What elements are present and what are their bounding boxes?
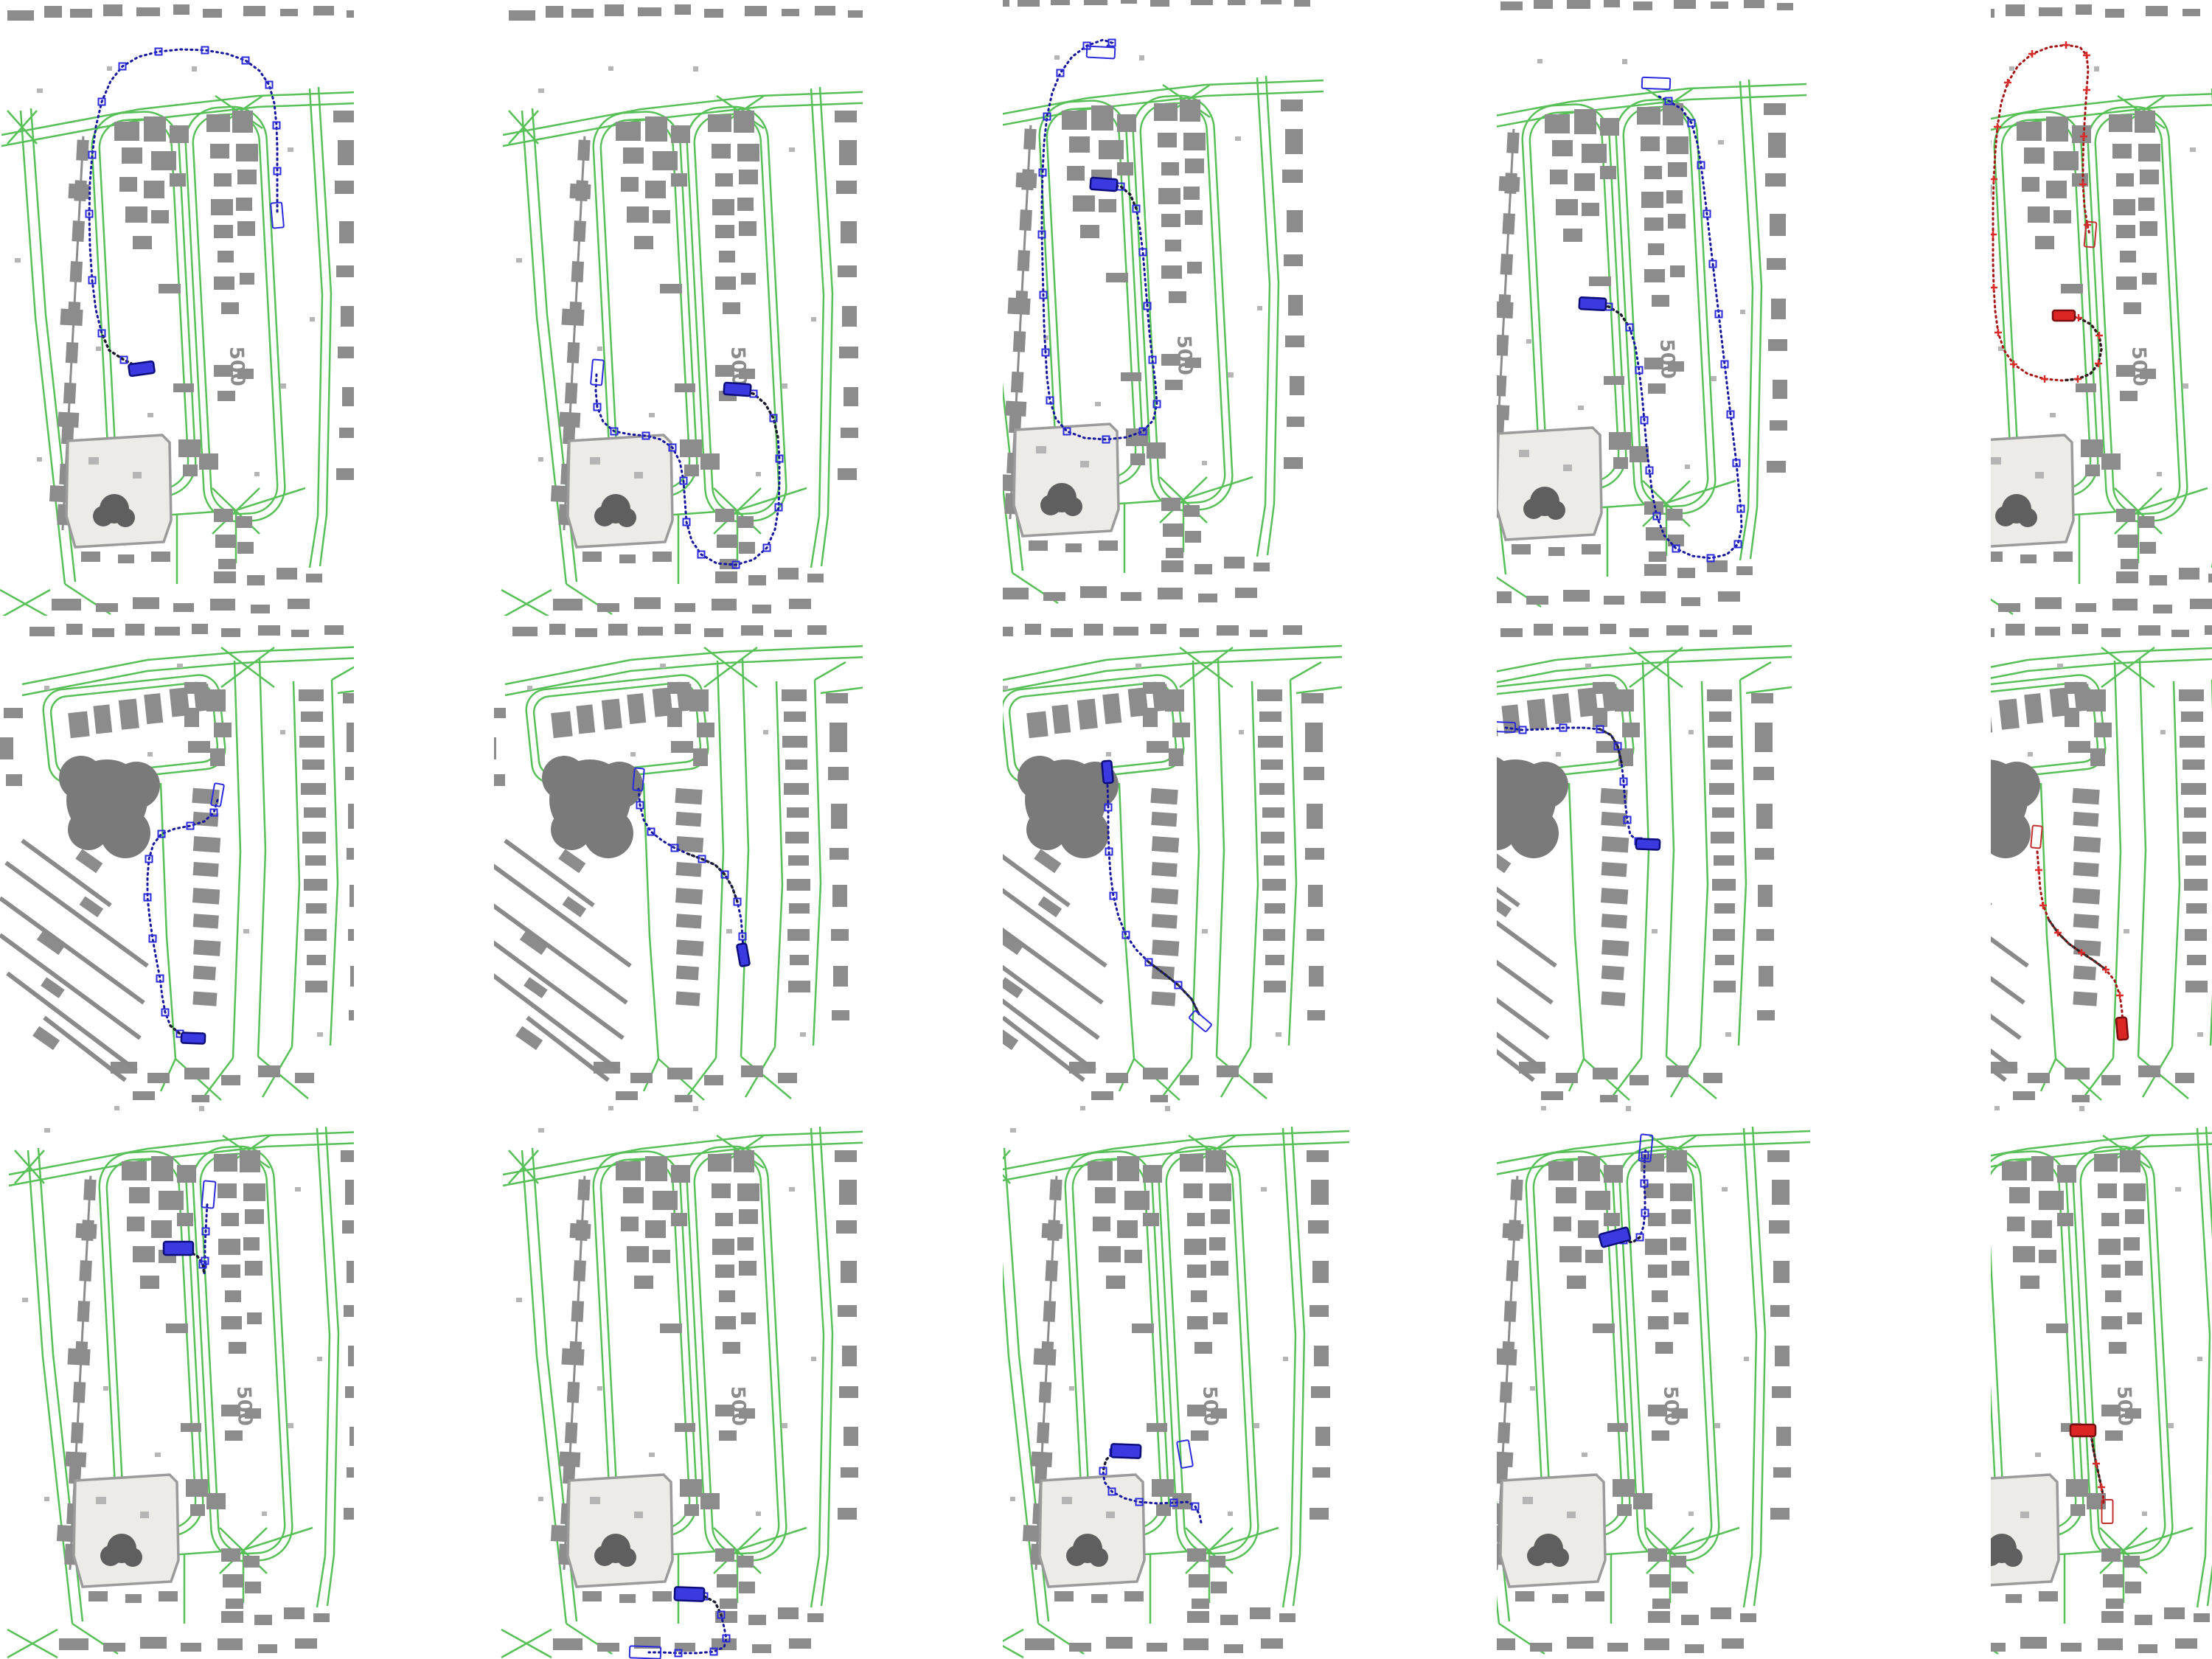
trajectory-layer bbox=[1003, 619, 1364, 1102]
trajectory-path bbox=[1042, 40, 1157, 439]
panel-r3c2 bbox=[494, 1106, 863, 1659]
goal-box bbox=[1189, 1010, 1211, 1032]
goal-box bbox=[1177, 1440, 1193, 1468]
vehicle-box bbox=[2116, 1017, 2129, 1040]
vehicle-box bbox=[1102, 760, 1113, 783]
trajectory-path bbox=[596, 375, 779, 565]
trajectory-layer bbox=[1003, 0, 1364, 616]
waypoint-markers bbox=[1520, 725, 1642, 845]
trajectory-layer bbox=[1991, 1106, 2212, 1659]
vehicle-box bbox=[2053, 310, 2075, 321]
vehicle-box bbox=[1636, 838, 1660, 849]
trajectory-layer bbox=[1991, 619, 2212, 1102]
panel-r1c4 bbox=[1497, 0, 1858, 616]
goal-box bbox=[211, 783, 224, 807]
trajectory-layer bbox=[1003, 1106, 1364, 1659]
trajectory-path bbox=[1107, 785, 1199, 1014]
trajectory-path bbox=[1506, 728, 1648, 844]
vehicle-box bbox=[181, 1032, 205, 1043]
trajectory-path bbox=[1593, 96, 1742, 558]
panel-r1c3 bbox=[1003, 0, 1364, 616]
figure-grid bbox=[0, 0, 2212, 1659]
history-path bbox=[1600, 729, 1621, 762]
trajectory-layer bbox=[1991, 0, 2212, 616]
vehicle-box bbox=[1579, 297, 1607, 310]
trajectory-layer bbox=[494, 0, 863, 616]
trajectory-path bbox=[1103, 1451, 1201, 1523]
waypoint-markers bbox=[1105, 804, 1182, 989]
vehicle-box bbox=[737, 943, 750, 967]
waypoint-markers bbox=[2087, 1430, 2105, 1491]
panel-r1c2 bbox=[494, 0, 863, 616]
trajectory-layer bbox=[0, 619, 354, 1102]
vehicle-box bbox=[2070, 1425, 2096, 1436]
panel-r3c4 bbox=[1497, 1106, 1858, 1659]
vehicle-box bbox=[164, 1242, 193, 1255]
waypoint-markers bbox=[1100, 1450, 1199, 1510]
goal-box bbox=[633, 768, 644, 790]
panel-r2c2 bbox=[494, 619, 863, 1102]
goal-box bbox=[1642, 77, 1671, 89]
history-path bbox=[1149, 962, 1199, 1014]
panel-r3c5 bbox=[1991, 1106, 2212, 1659]
trajectory-layer bbox=[494, 619, 863, 1102]
trajectory-layer bbox=[494, 1106, 863, 1659]
trajectory-layer bbox=[0, 1106, 354, 1659]
trajectory-layer bbox=[1497, 0, 1858, 616]
waypoint-markers bbox=[675, 1593, 730, 1657]
waypoint-markers bbox=[86, 47, 281, 364]
panel-r1c5 bbox=[1991, 0, 2212, 616]
panel-r1c1 bbox=[0, 0, 354, 616]
vehicle-box bbox=[1090, 178, 1117, 191]
waypoint-markers bbox=[637, 802, 746, 940]
panel-r3c3 bbox=[1003, 1106, 1364, 1659]
trajectory-layer bbox=[1497, 619, 1858, 1102]
history-path bbox=[2062, 316, 2101, 380]
waypoint-markers bbox=[2035, 866, 2124, 999]
vehicle-box bbox=[1599, 1227, 1630, 1248]
waypoint-markers bbox=[1606, 98, 1745, 562]
trajectory-path bbox=[2037, 852, 2123, 1026]
goal-box bbox=[2031, 825, 2042, 848]
goal-box bbox=[201, 1180, 215, 1208]
panel-r2c4 bbox=[1497, 619, 1858, 1102]
panel-r2c1 bbox=[0, 619, 354, 1102]
panel-r3c1 bbox=[0, 1106, 354, 1659]
panel-r2c5 bbox=[1991, 619, 2212, 1102]
vehicle-box bbox=[1111, 1444, 1141, 1458]
vehicle-box bbox=[723, 383, 751, 396]
vehicle-box bbox=[675, 1587, 705, 1601]
history-path bbox=[688, 854, 737, 902]
waypoint-markers bbox=[594, 391, 783, 568]
panel-r2c3 bbox=[1003, 619, 1364, 1102]
trajectory-path bbox=[89, 49, 277, 369]
trajectory-layer bbox=[1497, 1106, 1858, 1659]
trajectory-path bbox=[2083, 1430, 2104, 1503]
trajectory-path bbox=[1993, 45, 2101, 380]
vehicle-box bbox=[128, 361, 155, 377]
trajectory-layer bbox=[0, 0, 354, 616]
waypoint-markers bbox=[1039, 40, 1161, 443]
